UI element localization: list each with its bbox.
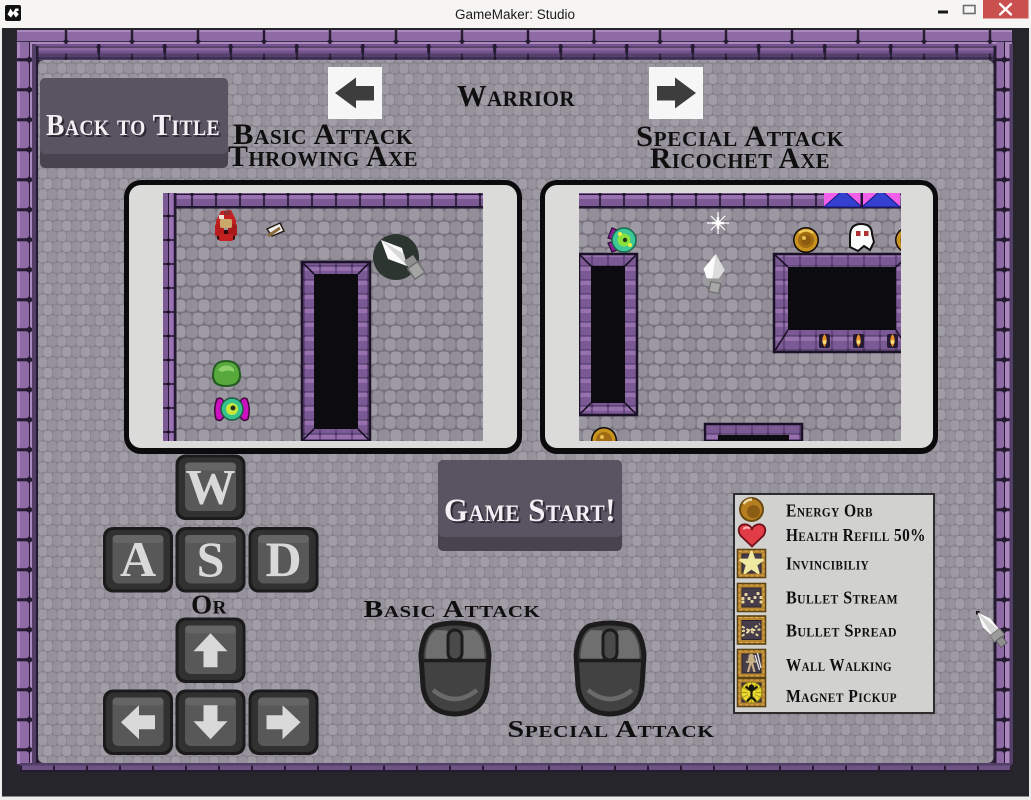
svg-text:Game Start!: Game Start! — [444, 493, 616, 529]
svg-text:W: W — [186, 458, 236, 514]
svg-text:Bullet Spread: Bullet Spread — [786, 621, 897, 641]
svg-text:Or: Or — [191, 590, 227, 620]
svg-text:Throwing Axe: Throwing Axe — [228, 140, 418, 173]
svg-text:Energy Orb: Energy Orb — [786, 501, 873, 521]
svg-text:Health Refill 50%: Health Refill 50% — [786, 525, 926, 545]
svg-text:Ricochet Axe: Ricochet Axe — [650, 142, 830, 175]
svg-text:A: A — [120, 531, 156, 587]
svg-text:S: S — [197, 531, 225, 587]
svg-text:D: D — [265, 531, 301, 587]
svg-text:Warrior: Warrior — [457, 78, 576, 113]
svg-text:Magnet Pickup: Magnet Pickup — [786, 686, 897, 706]
svg-text:Wall Walking: Wall Walking — [786, 655, 892, 675]
svg-text:Invincibiliy: Invincibiliy — [786, 554, 869, 574]
svg-text:Basic Attack: Basic Attack — [364, 597, 541, 623]
svg-text:GameMaker: Studio: GameMaker: Studio — [455, 7, 575, 22]
svg-text:Back to Title: Back to Title — [46, 107, 220, 142]
svg-text:Bullet Stream: Bullet Stream — [786, 588, 898, 608]
svg-text:Special Attack: Special Attack — [508, 717, 715, 743]
